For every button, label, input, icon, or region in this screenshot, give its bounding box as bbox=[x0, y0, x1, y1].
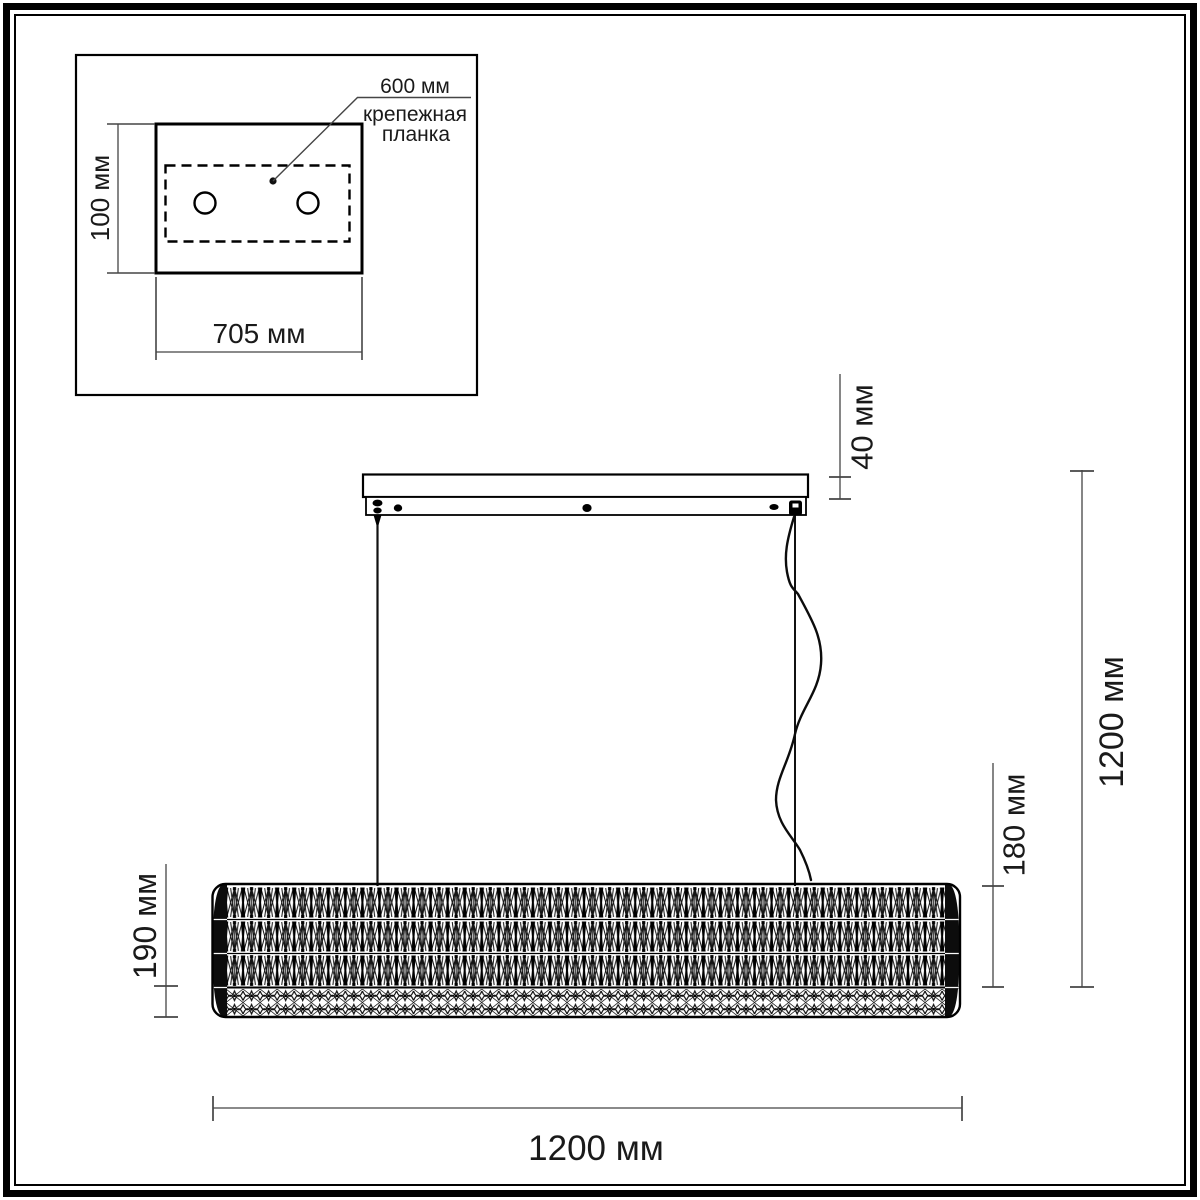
inner-border bbox=[14, 14, 1186, 1186]
figure-frame: 600 мм крепежная планка 100 мм 705 мм bbox=[0, 0, 1200, 1200]
